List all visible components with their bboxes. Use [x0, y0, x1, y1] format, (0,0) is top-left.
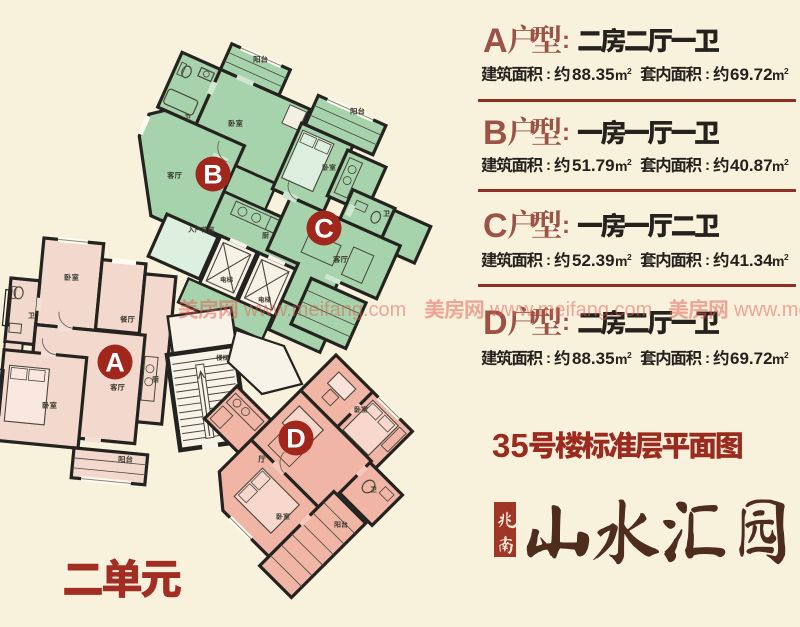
svg-text:41.34: 41.34 — [730, 251, 773, 270]
svg-text:m: m — [615, 158, 627, 174]
svg-text:88.35: 88.35 — [572, 349, 615, 368]
svg-text:m: m — [772, 67, 784, 83]
svg-text::: : — [705, 252, 710, 269]
svg-text:m: m — [615, 253, 627, 269]
svg-text:m: m — [772, 158, 784, 174]
svg-text:2: 2 — [627, 66, 632, 76]
svg-text:D: D — [286, 424, 306, 454]
svg-text::: : — [546, 350, 551, 367]
svg-text:C: C — [314, 214, 334, 244]
svg-text::: : — [546, 66, 551, 83]
svg-text:35: 35 — [492, 427, 529, 464]
svg-text:2: 2 — [627, 252, 632, 262]
svg-text:www.meifang.com: www.meifang.com — [733, 299, 800, 321]
svg-text::: : — [705, 350, 710, 367]
svg-text:51.79: 51.79 — [572, 156, 615, 175]
svg-text:2: 2 — [784, 252, 789, 262]
svg-text:40.87: 40.87 — [730, 156, 773, 175]
svg-text:2: 2 — [784, 66, 789, 76]
svg-text:B: B — [483, 114, 508, 152]
svg-text:2: 2 — [784, 157, 789, 167]
svg-text:69.72: 69.72 — [730, 65, 773, 84]
svg-text::: : — [705, 66, 710, 83]
svg-text::: : — [562, 119, 570, 146]
svg-text::: : — [562, 212, 570, 239]
svg-text:A: A — [105, 348, 125, 378]
svg-text:m: m — [772, 253, 784, 269]
svg-text::: : — [546, 252, 551, 269]
svg-text:2: 2 — [627, 350, 632, 360]
svg-text:2: 2 — [784, 350, 789, 360]
svg-text:2: 2 — [627, 157, 632, 167]
svg-text:69.72: 69.72 — [730, 349, 773, 368]
svg-text::: : — [705, 157, 710, 174]
svg-text:www.meifang.com: www.meifang.com — [489, 299, 652, 321]
svg-text::: : — [562, 27, 570, 54]
svg-text:m: m — [615, 351, 627, 367]
svg-text:www.meifang.com: www.meifang.com — [243, 299, 406, 321]
svg-text::: : — [546, 157, 551, 174]
svg-text:m: m — [615, 67, 627, 83]
svg-text:52.39: 52.39 — [572, 251, 615, 270]
svg-text:88.35: 88.35 — [572, 65, 615, 84]
svg-text:C: C — [483, 207, 508, 245]
svg-text:B: B — [203, 160, 223, 190]
svg-text:A: A — [483, 22, 508, 60]
svg-text:m: m — [772, 351, 784, 367]
